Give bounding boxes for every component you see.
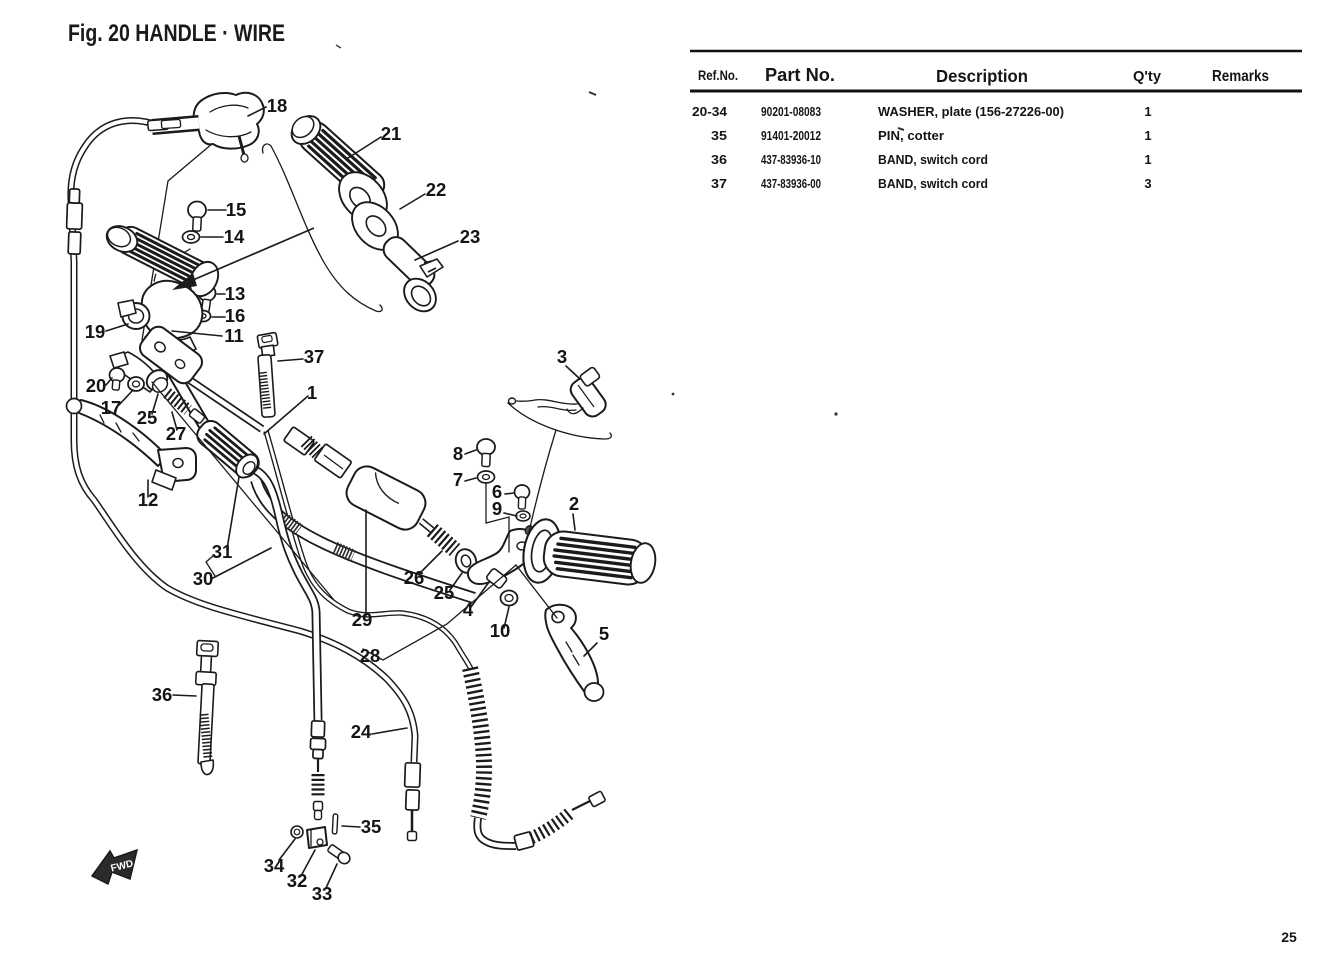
svg-text:Description: Description	[936, 66, 1028, 86]
svg-text:25: 25	[1281, 929, 1297, 945]
svg-text:31: 31	[212, 541, 233, 562]
svg-text:1: 1	[1144, 152, 1151, 167]
svg-text:PIN, cotter: PIN, cotter	[878, 128, 944, 143]
svg-text:20: 20	[86, 375, 107, 396]
svg-text:Part No.: Part No.	[765, 65, 835, 85]
svg-text:35: 35	[361, 816, 382, 837]
svg-text:Fig. 20 HANDLE · WIRE: Fig. 20 HANDLE · WIRE	[68, 20, 285, 47]
svg-text:22: 22	[426, 179, 447, 200]
svg-text:91401-20012: 91401-20012	[761, 128, 821, 143]
svg-text:32: 32	[287, 870, 308, 891]
svg-text:9: 9	[492, 498, 502, 519]
svg-text:23: 23	[460, 226, 481, 247]
svg-text:BAND, switch cord: BAND, switch cord	[878, 152, 988, 167]
svg-text:20-34: 20-34	[692, 104, 728, 119]
svg-text:Remarks: Remarks	[1212, 68, 1269, 85]
svg-text:28: 28	[360, 645, 381, 666]
svg-text:33: 33	[312, 883, 333, 904]
svg-text:Ref.No.: Ref.No.	[698, 68, 738, 83]
svg-text:10: 10	[490, 620, 511, 641]
svg-text:34: 34	[264, 855, 285, 876]
svg-text:18: 18	[267, 95, 288, 116]
svg-text:36: 36	[711, 152, 727, 167]
svg-text:17: 17	[101, 397, 122, 418]
svg-text:29: 29	[352, 609, 373, 630]
svg-text:25: 25	[434, 582, 455, 603]
svg-text:Q'ty: Q'ty	[1133, 68, 1162, 85]
svg-text:WASHER, plate (156-27226-00): WASHER, plate (156-27226-00)	[878, 104, 1064, 119]
svg-text:5: 5	[599, 623, 609, 644]
svg-text:13: 13	[225, 283, 246, 304]
svg-text:26: 26	[404, 567, 425, 588]
svg-text:437-83936-10: 437-83936-10	[761, 152, 821, 167]
svg-text:21: 21	[381, 123, 402, 144]
svg-text:3: 3	[1144, 176, 1151, 191]
svg-text:19: 19	[85, 321, 106, 342]
svg-text:36: 36	[152, 684, 173, 705]
svg-text:7: 7	[453, 469, 463, 490]
svg-text:1: 1	[307, 382, 317, 403]
svg-text:1: 1	[1144, 104, 1151, 119]
svg-text:35: 35	[711, 128, 727, 143]
svg-text:24: 24	[351, 721, 372, 742]
svg-text:30: 30	[193, 568, 214, 589]
svg-text:16: 16	[225, 305, 246, 326]
svg-text:3: 3	[557, 346, 567, 367]
svg-text:15: 15	[226, 199, 247, 220]
svg-text:14: 14	[224, 226, 245, 247]
svg-text:37: 37	[304, 346, 325, 367]
svg-text:37: 37	[711, 176, 727, 191]
svg-text:11: 11	[224, 325, 244, 346]
svg-text:BAND, switch cord: BAND, switch cord	[878, 176, 988, 191]
svg-text:25: 25	[137, 407, 158, 428]
svg-text:437-83936-00: 437-83936-00	[761, 176, 821, 191]
svg-text:1: 1	[1144, 128, 1151, 143]
svg-text:2: 2	[569, 493, 579, 514]
svg-text:8: 8	[453, 443, 463, 464]
svg-text:90201-08083: 90201-08083	[761, 104, 821, 119]
